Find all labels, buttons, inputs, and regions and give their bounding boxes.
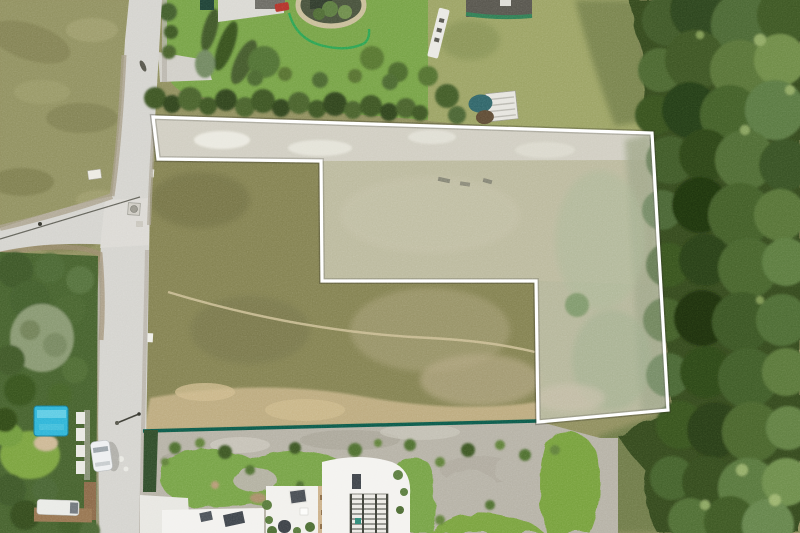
aerial-photo-viewport	[0, 0, 800, 533]
aerial-photo	[0, 0, 800, 533]
photo-grain	[0, 0, 800, 533]
